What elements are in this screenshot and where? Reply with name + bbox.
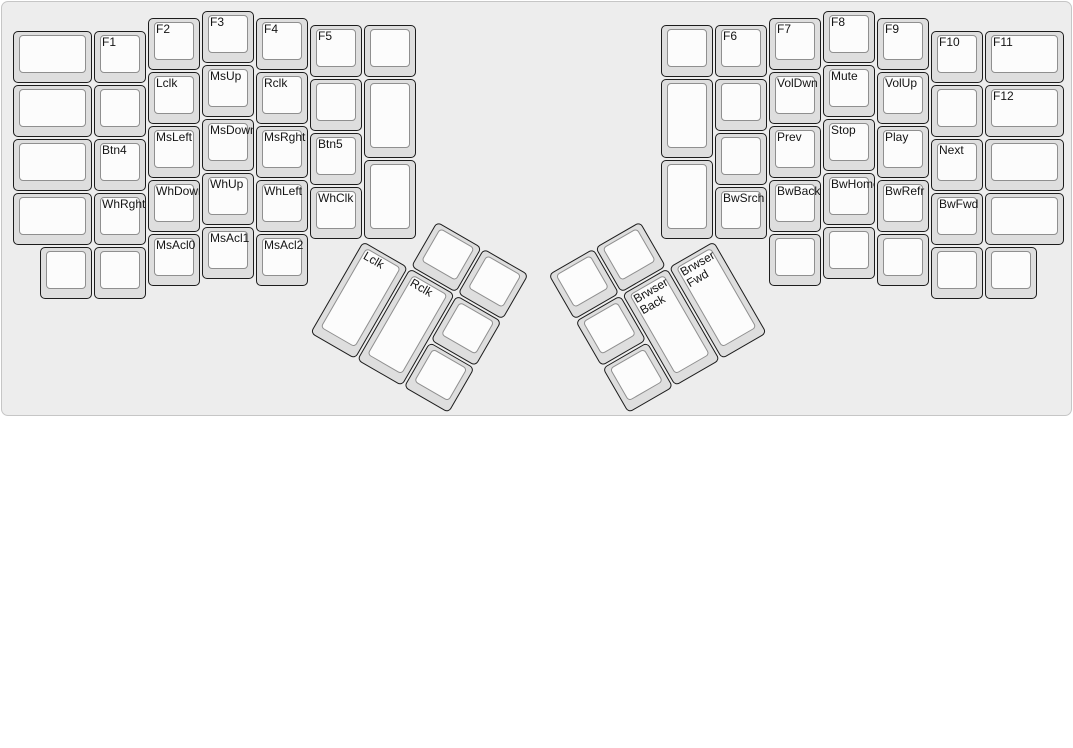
keyboard-canvas: F1F2F3F4F5LclkMsUpRclkBtn4MsLeftMsDownMs…	[1, 1, 1072, 416]
